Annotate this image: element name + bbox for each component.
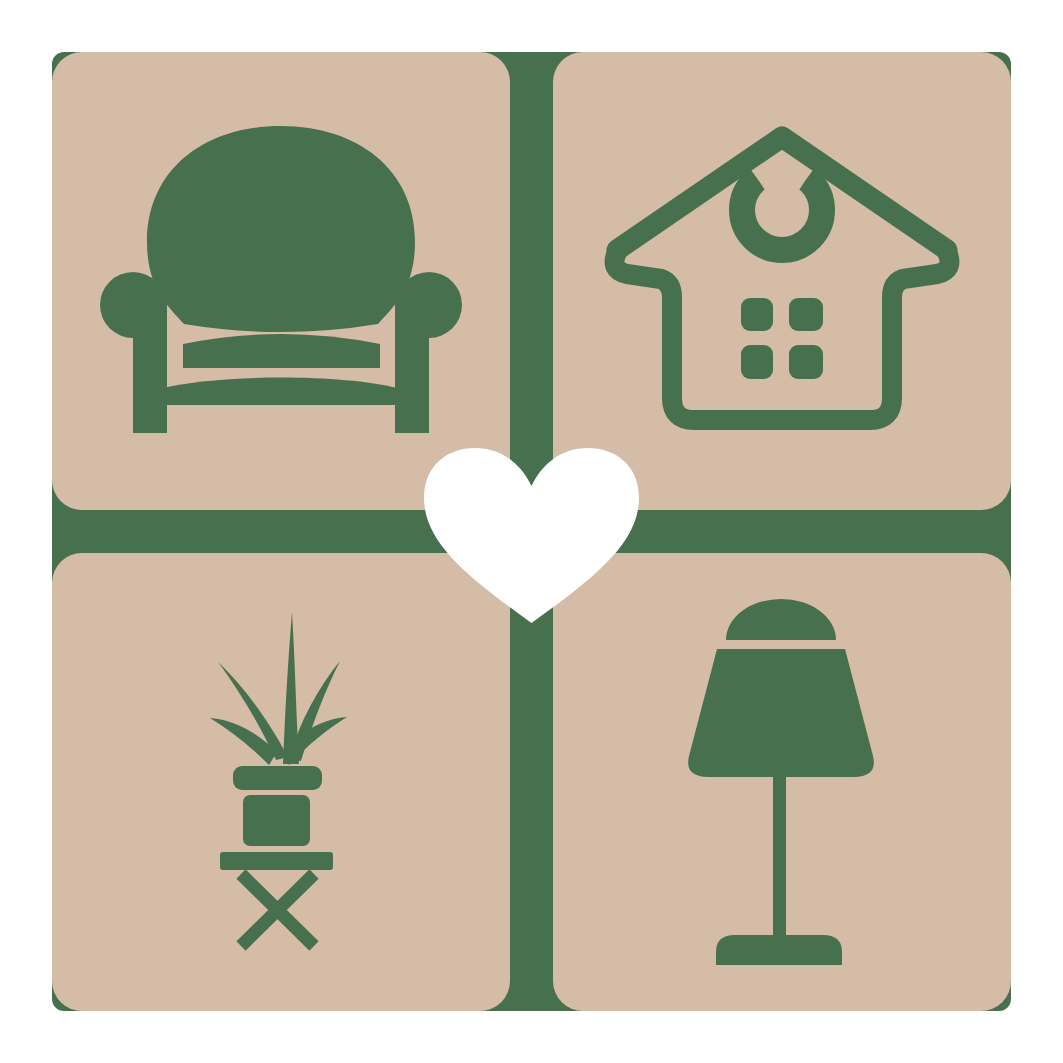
house-icon bbox=[553, 52, 1011, 510]
heart-icon bbox=[424, 448, 639, 623]
tile-house bbox=[553, 52, 1011, 510]
armchair-icon bbox=[52, 52, 510, 510]
tile-armchair bbox=[52, 52, 510, 510]
furniture-home-logo bbox=[0, 0, 1063, 1063]
